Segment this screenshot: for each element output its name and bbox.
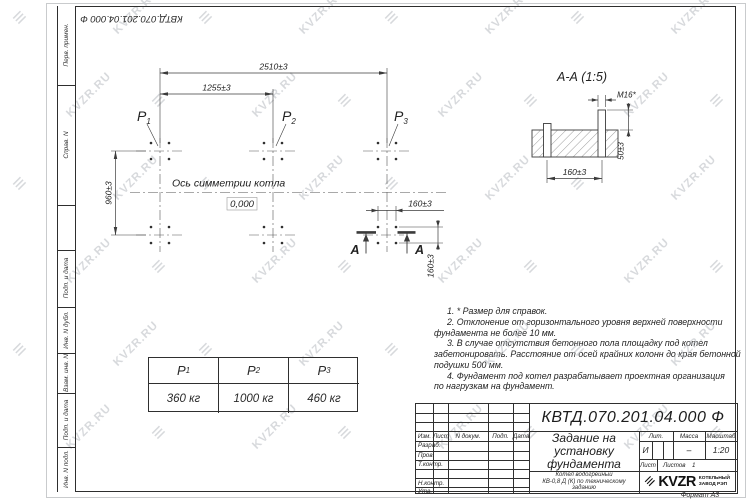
sheets-count: 1 — [692, 462, 695, 469]
document-title: Задание на установку фундамента — [529, 431, 639, 471]
corner-designation-stamp: КВТД.070.201.04.000 Ф — [75, 6, 187, 30]
col-podp: Подп. — [488, 433, 513, 440]
load-table: P1 P2 P3 360 кг 1000 кг 460 кг — [148, 357, 358, 412]
mass-value: – — [673, 445, 705, 455]
load-table-value: 1000 кг — [219, 384, 289, 413]
scale-header: Масштаб — [705, 433, 737, 440]
row-razrab: Разраб. — [418, 442, 440, 449]
company-logo: ≡ KVZR КОТЕЛЬНЫЙ ЗАВОД РЭП — [639, 471, 737, 493]
row-prov: Пров. — [418, 452, 434, 459]
corner-designation-text: КВТД.070.201.04.000 Ф — [80, 13, 182, 24]
margin-field-sprav-n: Справ. N — [57, 85, 75, 205]
sheets-label: Листов — [663, 462, 686, 469]
col-ndok: N докум. — [448, 433, 488, 440]
row-tkontr: Т.контр. — [418, 461, 443, 468]
col-list: Лист — [433, 433, 448, 440]
lit-value: И — [639, 445, 652, 455]
load-table-header: P2 — [219, 358, 289, 384]
row-utv: Утв. — [418, 488, 432, 495]
row-nkontr: Н.контр. — [418, 480, 444, 487]
title-block: КВТД.070.201.04.000 Ф Изм. Лист N докум.… — [415, 403, 738, 494]
load-table-value: 360 кг — [149, 384, 219, 413]
mass-header: Масса — [673, 433, 705, 440]
format-label: Формат А3 — [655, 492, 745, 499]
kvzr-logo-text: KVZR — [658, 474, 695, 490]
drawing-sheet: ≡KVZR.RU≡KVZR.RU≡KVZR.RU≡KVZR.RUKVZR.RU≡… — [0, 0, 750, 500]
col-data: Дата — [513, 433, 529, 440]
sheet-label: Лист — [639, 462, 657, 469]
kvzr-logo-subtitle: КОТЕЛЬНЫЙ ЗАВОД РЭП — [699, 476, 730, 487]
load-table-header: P1 — [149, 358, 219, 384]
margin-field-inv-podl: Инв. N подл. — [57, 409, 75, 500]
titleblock-designation: КВТД.070.201.04.000 Ф — [529, 404, 737, 431]
load-table-value: 460 кг — [289, 384, 359, 413]
lit-header: Лит. — [639, 433, 673, 440]
load-table-header: P3 — [289, 358, 359, 384]
scale-value: 1:20 — [705, 445, 737, 455]
product-name: Котел водогрейный КВ-0,8 Д (К) по технич… — [529, 471, 639, 493]
col-izm: Изм. — [416, 433, 433, 440]
